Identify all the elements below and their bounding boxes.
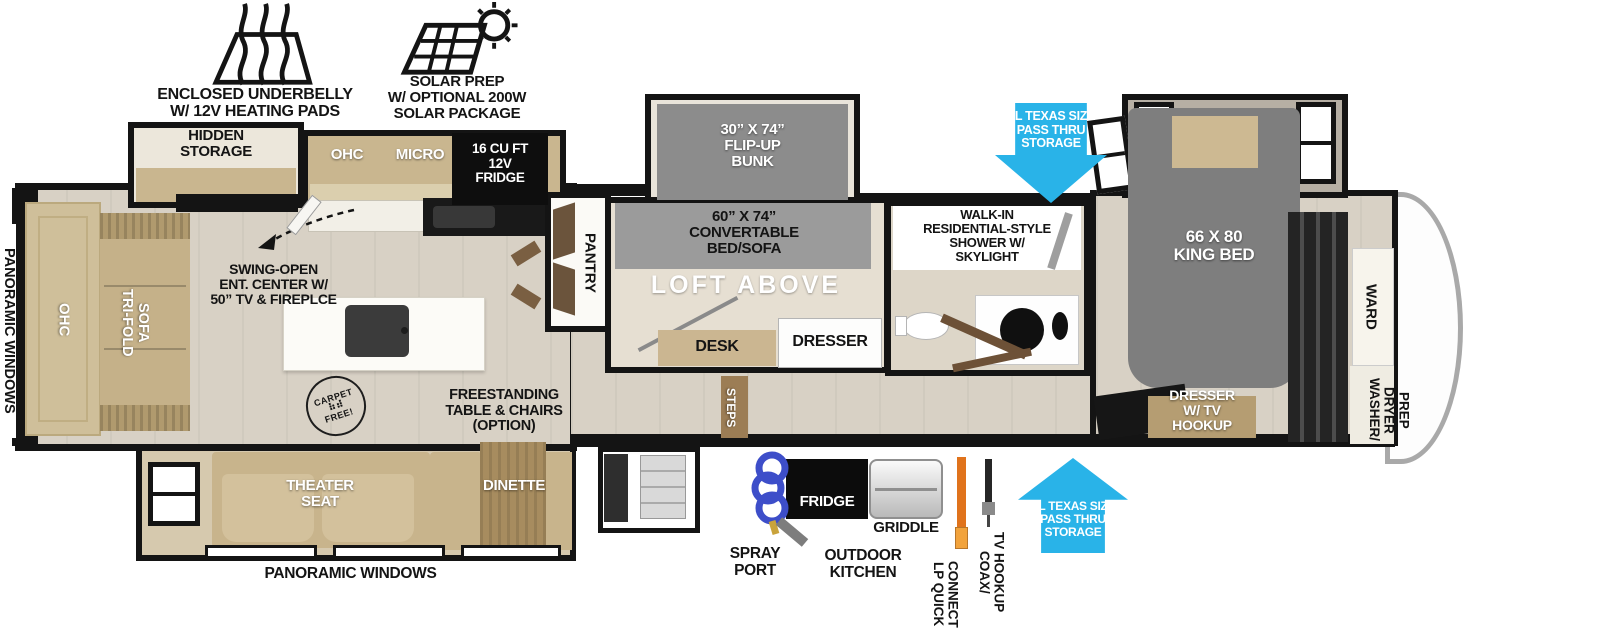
loft-above-label: LOFT ABOVE	[620, 272, 872, 299]
toilet-tank	[895, 316, 907, 336]
dinette-label: DINETTE	[452, 478, 576, 494]
coax-connector	[982, 502, 995, 515]
pantry-shelf	[553, 202, 575, 259]
loft-dresser-label: DRESSER	[778, 333, 882, 350]
refrigerator-label: 16 CU FT 12V FRIDGE	[452, 142, 548, 186]
corridor-floor	[571, 373, 1092, 434]
window-bar	[153, 492, 195, 496]
bed-pillow	[1172, 116, 1258, 168]
dinette-table	[480, 442, 546, 548]
bottom-wall	[571, 434, 1395, 447]
steps-label: STEPS	[724, 380, 746, 436]
pantry-shelf	[553, 262, 575, 315]
washer-dryer-label: WASHER/ DRYER PREP	[1366, 358, 1420, 462]
griddle-detail	[875, 488, 937, 491]
window-bar	[1301, 141, 1331, 145]
freestanding-table-label: FREESTANDING TABLE & CHAIRS (OPTION)	[418, 388, 590, 435]
ent-center-label: SWING-OPEN ENT. CENTER W/ 50” TV & FIREP…	[196, 262, 351, 307]
slide-end-window	[148, 462, 200, 526]
sofa-armrest	[100, 405, 190, 431]
entry-panel	[604, 454, 628, 522]
slide-window	[205, 545, 317, 559]
outdoor-fridge-label: FRIDGE	[786, 494, 868, 510]
bathroom-fixture	[1052, 312, 1068, 340]
hidden-storage-label: HIDDEN STORAGE	[132, 128, 300, 160]
dinette-bench	[544, 452, 572, 550]
entry-steps	[640, 455, 686, 519]
wardrobe-label: WARD	[1362, 258, 1384, 356]
desk-label: DESK	[658, 338, 776, 355]
sofa-armrest	[100, 213, 190, 239]
lp-quick-connect-label: LP QUICK CONNECT	[930, 552, 978, 636]
solar-prep-label: SOLAR PREP W/ OPTIONAL 200W SOLAR PACKAG…	[362, 74, 552, 123]
flip-up-bunk-label: 30” X 74” FLIP-UP BUNK	[657, 122, 848, 171]
theater-seat-label: THEATER SEAT	[228, 478, 412, 510]
island-sink	[345, 305, 409, 357]
shower-label: WALK-IN RESIDENTIAL-STYLE SHOWER W/ SKYL…	[895, 208, 1079, 264]
outdoor-kitchen-label: OUTDOOR KITCHEN	[806, 548, 920, 581]
microwave-label: MICRO	[384, 147, 456, 163]
king-bed-label: 66 X 80 KING BED	[1148, 228, 1280, 265]
pantry-label: PANTRY	[581, 210, 605, 316]
cooktop	[433, 206, 495, 228]
coax-cable	[985, 459, 992, 505]
solar-prep-icon	[395, 0, 525, 78]
dinette-bench	[430, 452, 482, 550]
panoramic-windows-left-label: PANORAMIC WINDOWS	[0, 224, 16, 438]
coax-tv-hookup-label: COAX/ TV HOOKUP	[976, 520, 1022, 624]
bedroom-dresser-label: DRESSER W/ TV HOOKUP	[1144, 388, 1260, 433]
slide-window	[333, 545, 445, 559]
pass-thru-top-label: XL TEXAS SIZE PASS THRU STORAGE	[995, 110, 1107, 151]
underbelly-label: ENCLOSED UNDERBELLY W/ 12V HEATING PADS	[105, 86, 405, 121]
wardrobe-closet	[1288, 212, 1348, 442]
slide-window	[461, 545, 561, 559]
tri-fold-sofa-label: TRI-FOLD SOFA	[118, 245, 172, 400]
griddle-label: GRIDDLE	[843, 520, 969, 536]
bedroom-window	[1296, 102, 1336, 184]
panoramic-windows-bottom-label: PANORAMIC WINDOWS	[238, 566, 463, 583]
convertable-bed-label: 60” X 74” CONVERTABLE BED/SOFA	[628, 209, 860, 258]
heating-pads-icon	[198, 2, 318, 88]
rv-floorplan: ENCLOSED UNDERBELLY W/ 12V HEATING PADS …	[0, 0, 1600, 636]
faucet	[401, 327, 408, 334]
spray-port-label: SPRAY PORT	[700, 546, 810, 579]
kitchen-ohc-label: OHC	[316, 147, 378, 163]
rear-ohc-label: OHC	[55, 255, 75, 385]
pass-thru-bottom-label: XL TEXAS SIZE PASS THRU STORAGE	[1018, 500, 1128, 539]
